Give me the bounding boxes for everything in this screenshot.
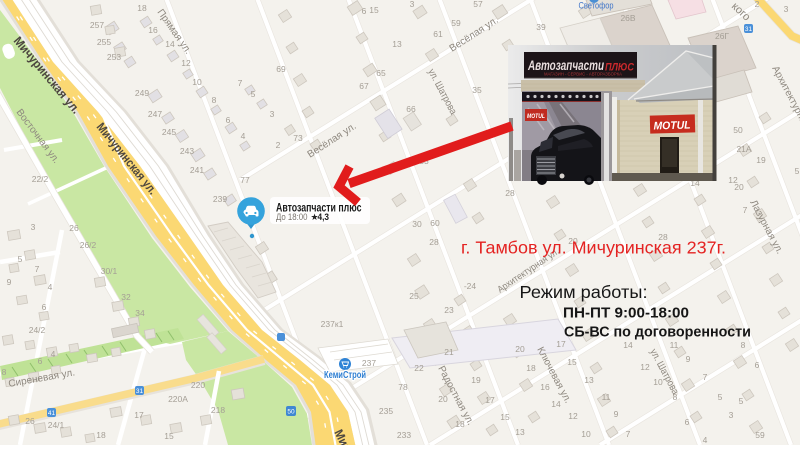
svg-text:15: 15 — [369, 5, 379, 15]
svg-text:3: 3 — [270, 109, 275, 119]
svg-text:20: 20 — [515, 344, 525, 354]
svg-text:24/2: 24/2 — [29, 325, 46, 335]
svg-text:До 18:00: До 18:00 — [276, 212, 308, 222]
svg-text:39: 39 — [536, 22, 546, 32]
svg-text:3: 3 — [410, 0, 415, 9]
svg-text:218: 218 — [211, 405, 225, 415]
svg-text:6: 6 — [362, 6, 367, 16]
svg-text:59: 59 — [451, 18, 461, 28]
svg-text:12: 12 — [181, 58, 191, 68]
svg-text:18: 18 — [137, 3, 147, 13]
svg-text:4,3: 4,3 — [318, 212, 330, 223]
svg-text:4: 4 — [48, 282, 53, 292]
svg-text:10: 10 — [192, 77, 202, 87]
svg-text:17: 17 — [134, 410, 144, 420]
svg-text:6: 6 — [42, 302, 47, 312]
svg-text:26/2: 26/2 — [80, 240, 97, 250]
svg-text:10: 10 — [581, 429, 591, 439]
svg-text:237: 237 — [362, 358, 376, 368]
svg-text:8: 8 — [212, 95, 217, 105]
svg-text:20: 20 — [734, 182, 744, 192]
svg-text:25: 25 — [409, 291, 419, 301]
svg-text:4: 4 — [51, 349, 56, 359]
svg-text:9: 9 — [614, 409, 619, 419]
svg-text:15: 15 — [567, 357, 577, 367]
svg-text:220А: 220А — [168, 394, 188, 404]
svg-text:3: 3 — [729, 410, 734, 420]
svg-text:7: 7 — [743, 205, 748, 215]
svg-text:21А: 21А — [736, 144, 751, 154]
svg-text:7: 7 — [703, 372, 708, 382]
svg-text:50: 50 — [287, 409, 295, 416]
svg-text:6: 6 — [685, 417, 690, 427]
svg-text:14: 14 — [165, 39, 175, 49]
svg-text:14: 14 — [623, 340, 633, 350]
svg-text:-24: -24 — [464, 281, 477, 291]
svg-text:5: 5 — [251, 89, 256, 99]
svg-text:КемиСтрой: КемиСтрой — [324, 369, 366, 381]
svg-text:13: 13 — [584, 375, 594, 385]
svg-text:11: 11 — [670, 340, 679, 350]
svg-text:5: 5 — [718, 392, 723, 402]
svg-text:г. Тамбов ул. Мичуринская 237г: г. Тамбов ул. Мичуринская 237г. — [461, 238, 726, 258]
svg-text:ПН-ПТ 9:00-18:00: ПН-ПТ 9:00-18:00 — [563, 306, 689, 322]
svg-text:257: 257 — [90, 20, 104, 30]
svg-text:4: 4 — [241, 131, 246, 141]
svg-text:MOTUL: MOTUL — [653, 120, 691, 133]
svg-text:13: 13 — [515, 427, 525, 437]
svg-text:7: 7 — [626, 429, 631, 439]
svg-text:235: 235 — [379, 406, 393, 416]
svg-text:8: 8 — [673, 392, 678, 402]
svg-text:22/2: 22/2 — [32, 174, 49, 184]
svg-text:5: 5 — [739, 396, 744, 406]
svg-text:220: 220 — [191, 380, 205, 390]
svg-text:12: 12 — [568, 411, 578, 421]
svg-text:61: 61 — [433, 29, 443, 39]
svg-text:Светофор: Светофор — [579, 1, 614, 12]
svg-text:9: 9 — [7, 277, 12, 287]
svg-text:32: 32 — [121, 292, 131, 302]
svg-text:41: 41 — [48, 410, 56, 417]
svg-text:17: 17 — [485, 395, 495, 405]
svg-text:66: 66 — [406, 104, 416, 114]
svg-text:28: 28 — [505, 188, 515, 198]
svg-text:60: 60 — [430, 218, 440, 228]
svg-text:233: 233 — [397, 430, 411, 440]
svg-text:16: 16 — [540, 382, 550, 392]
svg-text:5: 5 — [18, 254, 23, 264]
svg-text:6: 6 — [755, 360, 760, 370]
svg-text:247: 247 — [148, 109, 162, 119]
svg-text:67: 67 — [359, 81, 369, 91]
svg-text:243: 243 — [180, 146, 194, 156]
svg-text:7: 7 — [35, 264, 40, 274]
svg-text:31: 31 — [136, 388, 144, 395]
svg-text:13: 13 — [392, 39, 402, 49]
svg-text:СБ-ВС по договоренности: СБ-ВС по договоренности — [564, 325, 751, 341]
svg-text:26Г: 26Г — [715, 31, 729, 41]
svg-text:255: 255 — [97, 37, 111, 47]
svg-text:МАГАЗИН - СЕРВИС - АВТОРАЗБОРК: МАГАЗИН - СЕРВИС - АВТОРАЗБОРКА — [544, 72, 622, 77]
svg-text:18: 18 — [96, 430, 106, 440]
svg-text:14: 14 — [551, 399, 561, 409]
svg-text:245: 245 — [162, 127, 176, 137]
svg-text:249: 249 — [135, 88, 149, 98]
svg-text:19: 19 — [471, 375, 481, 385]
svg-text:30: 30 — [412, 219, 422, 229]
svg-text:18: 18 — [526, 363, 536, 373]
svg-text:MOTUL: MOTUL — [527, 113, 545, 120]
svg-text:2: 2 — [755, 0, 760, 9]
svg-text:239: 239 — [213, 194, 227, 204]
svg-text:4: 4 — [703, 435, 708, 445]
svg-text:10: 10 — [653, 377, 663, 387]
svg-text:65: 65 — [376, 68, 386, 78]
svg-text:73: 73 — [293, 133, 303, 143]
svg-text:31: 31 — [745, 26, 753, 33]
svg-text:77: 77 — [240, 175, 250, 185]
svg-text:19: 19 — [756, 155, 766, 165]
svg-text:18: 18 — [455, 419, 465, 429]
svg-text:22: 22 — [414, 363, 424, 373]
svg-text:5: 5 — [795, 166, 800, 176]
svg-text:11: 11 — [602, 392, 611, 402]
svg-text:9: 9 — [686, 354, 691, 364]
svg-text:35: 35 — [472, 85, 482, 95]
svg-text:26: 26 — [69, 223, 79, 233]
svg-text:15: 15 — [164, 431, 174, 441]
svg-text:241: 241 — [190, 165, 204, 175]
svg-text:2: 2 — [276, 140, 281, 150]
svg-text:3: 3 — [784, 4, 789, 14]
svg-text:30/1: 30/1 — [101, 266, 118, 276]
svg-text:8: 8 — [2, 367, 7, 377]
svg-text:6: 6 — [38, 356, 43, 366]
svg-text:21: 21 — [444, 347, 454, 357]
svg-text:253: 253 — [107, 52, 121, 62]
svg-text:8: 8 — [741, 340, 746, 350]
svg-text:7: 7 — [238, 78, 243, 88]
svg-text:Режим работы:: Режим работы: — [520, 282, 648, 302]
svg-text:28: 28 — [429, 237, 439, 247]
svg-text:6: 6 — [226, 115, 231, 125]
svg-text:3: 3 — [31, 222, 36, 232]
svg-text:16: 16 — [148, 25, 158, 35]
svg-text:12: 12 — [640, 362, 650, 372]
svg-text:59: 59 — [755, 430, 765, 440]
svg-text:50: 50 — [733, 125, 743, 135]
svg-text:78: 78 — [398, 382, 408, 392]
svg-text:20: 20 — [438, 394, 448, 404]
svg-text:24/1: 24/1 — [48, 420, 65, 430]
svg-text:237к1: 237к1 — [321, 319, 344, 329]
svg-text:23: 23 — [444, 305, 454, 315]
svg-text:15: 15 — [500, 412, 510, 422]
svg-text:26В: 26В — [620, 13, 635, 23]
svg-text:26: 26 — [25, 416, 35, 426]
svg-text:69: 69 — [276, 64, 286, 74]
svg-text:34: 34 — [135, 308, 145, 318]
svg-text:57: 57 — [473, 0, 483, 9]
